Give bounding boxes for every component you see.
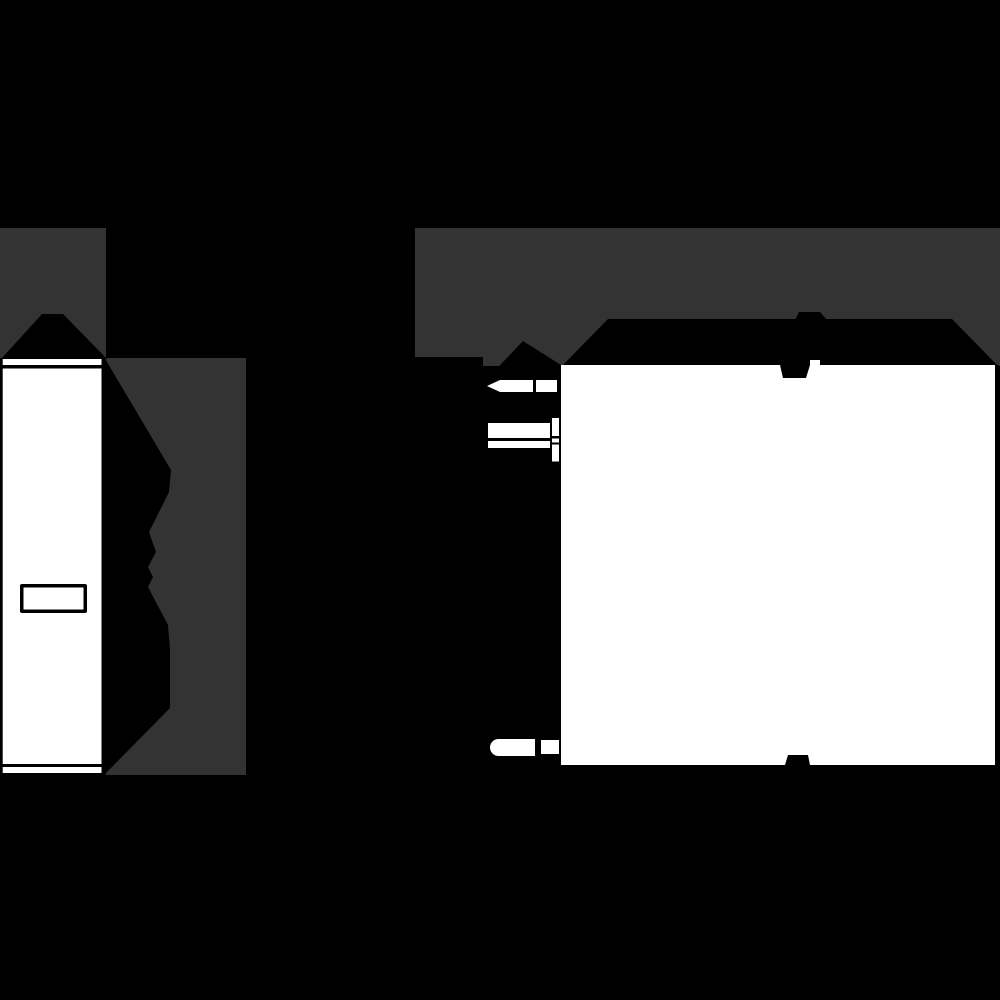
pin-bottom-body-square xyxy=(510,739,535,756)
front-din-clip-bottom-bump xyxy=(785,755,810,765)
side-top-cap-strip xyxy=(3,359,102,365)
front-terminal-pin-bottom xyxy=(490,739,559,756)
front-din-clip-bottom-tab xyxy=(737,765,815,774)
front-band-notch xyxy=(810,360,820,366)
front-view xyxy=(415,228,1000,774)
screw-shaft-middle xyxy=(552,439,559,443)
side-bottom-cap-strip xyxy=(3,767,102,773)
side-front-face xyxy=(3,369,102,765)
pin-bottom-end xyxy=(541,740,559,754)
screw-shaft-upper xyxy=(552,418,559,436)
front-top-band xyxy=(562,319,998,366)
screw-terminal-plate-upper xyxy=(488,423,550,438)
screw-terminal-plate-lower xyxy=(488,441,550,448)
front-border-right xyxy=(995,365,999,770)
pin-top-end xyxy=(536,380,557,392)
front-din-clip-top-tab xyxy=(780,365,810,378)
front-terminal-pin-top xyxy=(487,380,557,392)
technical-drawing-canvas xyxy=(0,0,1000,1000)
front-terminal-column xyxy=(484,341,561,770)
side-label-window xyxy=(24,588,84,610)
front-body-face xyxy=(561,365,995,765)
screw-shaft-lower xyxy=(552,445,559,462)
pin-top-body xyxy=(500,380,533,392)
